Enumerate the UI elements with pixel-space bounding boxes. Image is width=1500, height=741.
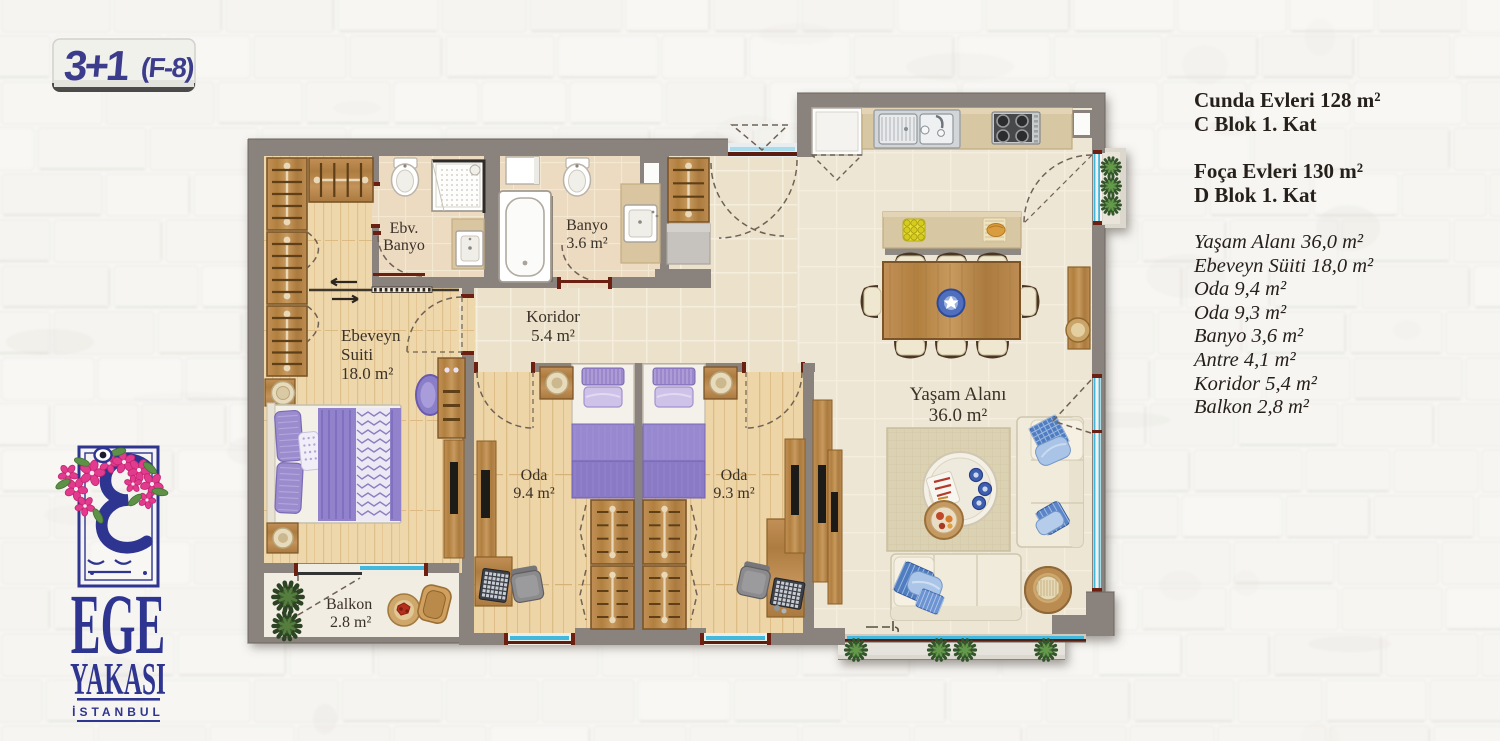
svg-text:2.8 m²: 2.8 m² xyxy=(330,614,371,631)
svg-text:Oda 9,3 m²: Oda 9,3 m² xyxy=(1194,302,1287,324)
svg-text:36.0 m²: 36.0 m² xyxy=(929,405,988,426)
svg-text:Ebv.: Ebv. xyxy=(390,220,419,237)
svg-text:İSTANBUL: İSTANBUL xyxy=(72,704,164,719)
svg-text:Banyo 3,6 m²: Banyo 3,6 m² xyxy=(1194,325,1304,347)
svg-text:(F-8): (F-8) xyxy=(140,52,195,83)
svg-text:Koridor 5,4 m²: Koridor 5,4 m² xyxy=(1193,373,1318,395)
svg-text:9.3 m²: 9.3 m² xyxy=(713,485,754,502)
svg-text:Balkon: Balkon xyxy=(326,596,372,613)
svg-text:Oda: Oda xyxy=(521,467,548,484)
svg-text:Foça Evleri 130 m²: Foça Evleri 130 m² xyxy=(1194,159,1363,183)
svg-text:3.6 m²: 3.6 m² xyxy=(566,235,607,252)
svg-text:Antre 4,1 m²: Antre 4,1 m² xyxy=(1192,349,1296,371)
svg-text:18.0 m²: 18.0 m² xyxy=(341,364,393,383)
svg-text:9.4 m²: 9.4 m² xyxy=(513,485,554,502)
svg-text:Oda 9,4 m²: Oda 9,4 m² xyxy=(1194,278,1287,300)
svg-text:Ebeveyn Süiti 18,0 m²: Ebeveyn Süiti 18,0 m² xyxy=(1193,255,1374,277)
svg-text:Cunda Evleri 128 m²: Cunda Evleri 128 m² xyxy=(1194,88,1381,112)
svg-text:Koridor: Koridor xyxy=(526,307,580,326)
svg-text:5.4 m²: 5.4 m² xyxy=(531,326,575,345)
svg-text:Yaşam Alanı 36,0 m²: Yaşam Alanı 36,0 m² xyxy=(1194,231,1364,253)
svg-text:Suiti: Suiti xyxy=(341,345,373,364)
svg-text:D Blok 1. Kat: D Blok 1. Kat xyxy=(1194,183,1317,207)
svg-text:Ebeveyn: Ebeveyn xyxy=(341,326,401,345)
svg-text:C Blok 1. Kat: C Blok 1. Kat xyxy=(1194,112,1317,136)
svg-text:YAKASI: YAKASI xyxy=(70,655,166,704)
svg-text:Banyo: Banyo xyxy=(566,217,608,234)
svg-text:Oda: Oda xyxy=(721,467,748,484)
svg-text:Balkon 2,8 m²: Balkon 2,8 m² xyxy=(1194,396,1310,418)
svg-text:3+1: 3+1 xyxy=(62,42,131,89)
svg-text:Yaşam Alanı: Yaşam Alanı xyxy=(910,384,1007,405)
svg-text:Banyo: Banyo xyxy=(383,237,425,254)
